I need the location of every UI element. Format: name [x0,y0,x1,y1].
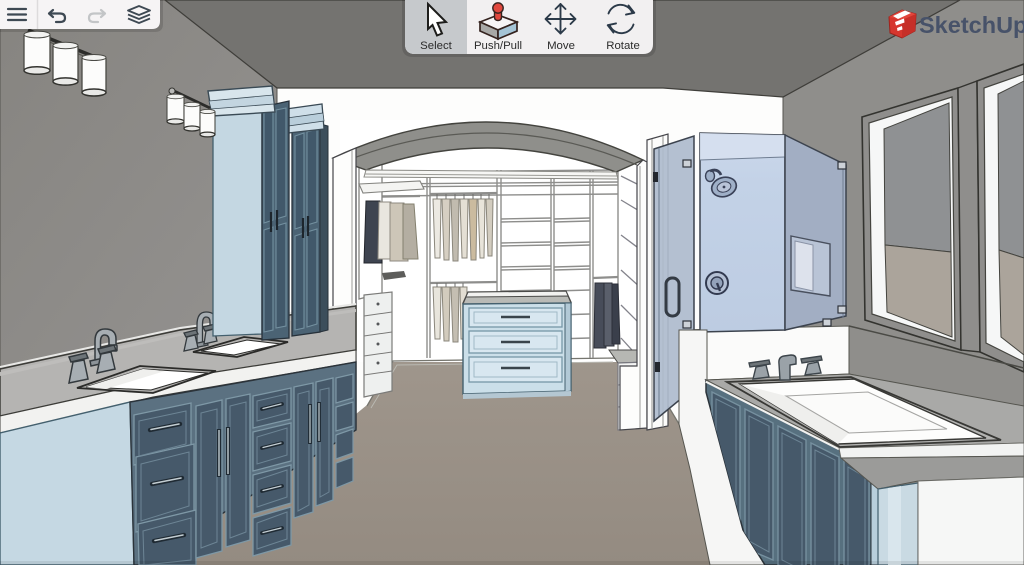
svg-text:Move: Move [547,40,575,52]
svg-text:Select: Select [420,40,452,52]
svg-text:Rotate: Rotate [606,40,640,52]
svg-text:SketchUp: SketchUp [919,12,1024,38]
svg-text:Push/Pull: Push/Pull [474,40,522,52]
